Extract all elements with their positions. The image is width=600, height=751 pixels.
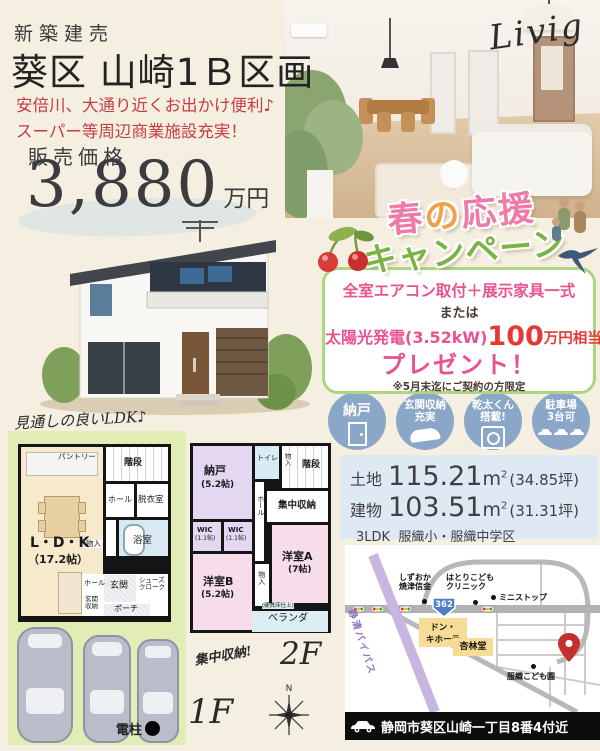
label-wic1: WIC [197, 527, 212, 535]
route-number: 362 [433, 597, 455, 619]
poi-dot [531, 664, 536, 669]
map-roads [345, 545, 600, 712]
dining-chair [401, 112, 415, 132]
feature-parking-label: 駐車場3台可 [532, 399, 590, 423]
map-label-bank: しずおか焼津信金 [399, 573, 431, 591]
label-wic2: WIC [228, 527, 243, 535]
feature-entrance-label: 玄関収納充実 [396, 399, 454, 423]
label-entrance: 玄関 [110, 582, 128, 592]
compass-north-label: N [266, 684, 312, 694]
label-nando: 納戸 [204, 465, 226, 477]
air-conditioner [291, 24, 327, 37]
feature-dryer-label: 乾太くん搭載! [464, 399, 522, 423]
map-label-kyorindo: 杏林堂 [453, 638, 493, 656]
label-shoes-cloak: シューズクローク [139, 577, 165, 591]
campaign-note: ※5月末迄にご契約の方限定 [325, 379, 593, 394]
shoe-icon [409, 427, 440, 443]
label-hall2: ホール [84, 580, 105, 588]
price-unit: 万円 [223, 186, 269, 212]
label-nando-size: (5.2帖) [201, 481, 234, 491]
map-label-clinic: はとりこどもクリニック [446, 573, 494, 591]
page-title: 葵区 山崎1Ｂ区画 [11, 42, 314, 96]
label-hall-2f: ホール [256, 495, 264, 516]
annotation-2f: 2F [280, 636, 321, 672]
label-bath: 浴室 [133, 536, 152, 546]
feature-storage: 納戸 [328, 392, 386, 450]
dryer-icon [481, 426, 505, 449]
chair-plan [38, 520, 46, 532]
label-room-b: 洋室B [203, 576, 233, 588]
label-wic2-size: (1.1帖) [226, 536, 246, 543]
car-icon [350, 719, 376, 733]
label-room-a: 洋室A [282, 551, 313, 563]
label-hall-1f: ホール [108, 496, 132, 505]
swallow-icon [556, 246, 598, 276]
room-hall-2f [255, 482, 264, 561]
map-label-kodomoen: 服織こども園 [507, 672, 555, 681]
annotation-1f: 1F [188, 692, 233, 732]
floor-plan-1f: パントリー 階段 ホール 脱衣室 物入 浴室 L・D・K （17.2帖） ホール… [18, 444, 171, 622]
label-ldk: L・D・K [30, 536, 89, 551]
layout-school: 3LDK 服織小・服織中学区 [356, 526, 598, 545]
sofa-plan [58, 572, 82, 614]
side-table [440, 160, 468, 188]
compass: N [266, 684, 312, 740]
label-room-a-size: (7帖) [288, 566, 312, 576]
cars-icon [537, 427, 585, 438]
label-entrance-storage: 玄関収納 [85, 596, 98, 610]
dining-table-plan [44, 496, 80, 538]
map-label-ministop: ミニストップ [499, 593, 547, 602]
chair-plan [78, 502, 86, 514]
label-wic1-size: (1.1帖) [195, 536, 215, 543]
feature-parking: 駐車場3台可 [532, 392, 590, 450]
feature-entrance-storage: 玄関収納充実 [396, 392, 454, 450]
annotation-central-storage: 集中収納! [193, 640, 253, 669]
family-illustration [548, 196, 594, 246]
utility-pole-label: 電柱 [116, 719, 142, 738]
label-stairs-2f: 階段 [302, 461, 320, 471]
catch-line-1: 安倍川、大通り近くお出かけ便利♪ [16, 93, 274, 119]
flyer-page: Livig 新築建売 葵区 山崎1Ｂ区画 安倍川、大通り近くお出かけ便利♪ スー… [0, 0, 600, 751]
pendant-lamp-small [381, 58, 399, 68]
utility-pole: 電柱 [116, 719, 160, 738]
building-spec: 建物103.51m2(31.31坪) [350, 492, 598, 523]
land-spec: 土地115.21m2(34.85坪) [350, 461, 598, 492]
sofa [472, 124, 592, 196]
room-closet-1f [106, 520, 116, 556]
label-veranda-note: (硬質床仕上) [262, 603, 294, 609]
chair-plan [38, 502, 46, 514]
label-closet-mid: 物入 [257, 571, 265, 585]
access-map: 362 しずおか焼津信金 はとりこどもクリニック ミニストップ ドン・キホーテ … [345, 545, 600, 712]
campaign-or: または [325, 302, 593, 321]
compass-rose-icon [268, 694, 310, 736]
living-room-photo: Livig [285, 0, 600, 218]
poi-dot [491, 595, 496, 600]
campaign-present: プレゼント！ [325, 352, 593, 378]
label-ldk-size: （17.2帖） [28, 554, 88, 566]
label-central-storage: 集中収納 [278, 501, 316, 511]
dining-table [367, 100, 429, 114]
address-text: 静岡市葵区山崎一丁目8番4付近 [381, 717, 568, 736]
lamp-cord-2 [389, 18, 391, 58]
campaign-offer-2: 太陽光発電(3.52kW)100万円相当 [325, 321, 593, 352]
label-veranda: ベランダ [268, 613, 308, 624]
label-dressing: 脱衣室 [138, 496, 164, 505]
label-room-b-size: (5.2帖) [201, 591, 234, 601]
room-a [272, 525, 328, 603]
utility-pole-dot [145, 721, 160, 736]
specs-box: 土地115.21m2(34.85坪) 建物103.51m2(31.31坪) 3L… [340, 455, 598, 539]
door-icon [348, 422, 367, 446]
dining-chair [377, 112, 391, 132]
poi-dot [422, 599, 427, 604]
cherry-illustration [308, 224, 380, 276]
feature-dryer: 乾太くん搭載! [464, 392, 522, 450]
chair-plan [78, 520, 86, 532]
label-porch: ポーチ [114, 605, 138, 614]
catch-copy: 安倍川、大通り近くお出かけ便利♪ スーパー等周辺商業施設充実！ [16, 93, 274, 144]
label-closet-top: 物入 [283, 453, 290, 466]
floor-plan-2f: 納戸 (5.2帖) トイレ 物入 階段 集中収納 ホール WIC (1.1帖) … [190, 443, 331, 633]
campaign-offer-box: 全室エアコン取付＋展示家具一式 または 太陽光発電(3.52kW)100万円相当… [322, 267, 596, 394]
poi-dot [473, 600, 478, 605]
campaign-offer-1: 全室エアコン取付＋展示家具一式 [325, 279, 593, 301]
address-bar: 静岡市葵区山崎一丁目8番4付近 [345, 712, 600, 740]
label-pantry: パントリー [58, 453, 96, 461]
feature-storage-label: 納戸 [328, 400, 386, 420]
label-stairs-1f: 階段 [124, 459, 142, 469]
label-toilet: トイレ [257, 455, 278, 463]
house-exterior-photo [30, 210, 320, 418]
